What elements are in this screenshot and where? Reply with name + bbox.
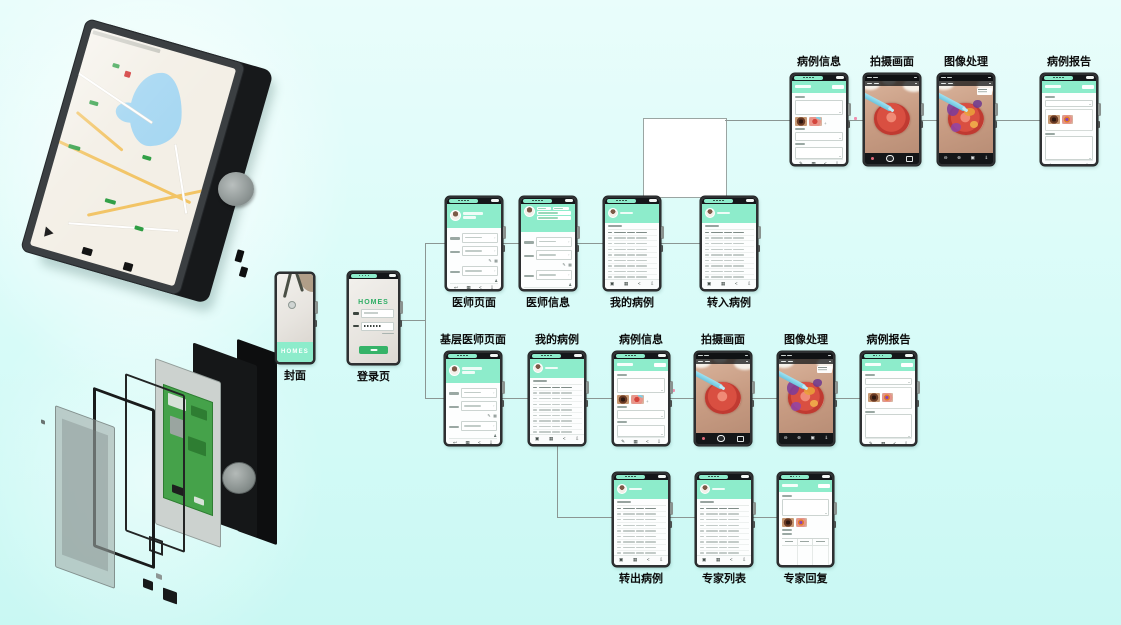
flow-edge — [725, 120, 790, 121]
bottom-nav: ↩ ▦ < ⇩ — [524, 287, 572, 290]
header-label — [795, 85, 811, 87]
report-images — [1045, 109, 1093, 131]
report-header — [862, 359, 915, 371]
add-photo-icon: + — [824, 122, 827, 127]
grid-icon: ▦ — [466, 286, 470, 289]
screen-label-cover: 封面 — [284, 367, 306, 383]
list-icon: ▣ — [702, 558, 706, 563]
processing-toolbar: ⊖ ⊕ ▣ ⇓ — [939, 153, 993, 164]
image-processing-screen: ⊖ ⊕ ▣ ⇓ — [779, 353, 833, 444]
header-search-pill — [654, 363, 666, 367]
case-report-screen: ✎ ▦ < ⇩ — [1042, 75, 1096, 164]
zoom-in-icon: ⊕ — [797, 436, 801, 441]
case-list-screen: ▣ ▦ < ⇩ — [697, 474, 751, 565]
grid-icon: ▦ — [633, 440, 637, 444]
download-icon: ⇩ — [835, 162, 839, 164]
edit-icon: ✎ — [562, 263, 565, 267]
case-table — [617, 505, 666, 554]
screen-label-expert-list: 专家列表 — [702, 570, 746, 586]
flow-edge — [502, 398, 528, 399]
case-list-screen: ▣ ▦ < ⇩ — [702, 198, 756, 289]
chevron-right-icon: › — [494, 269, 495, 273]
flow-edge — [557, 517, 612, 518]
wound-camera-view — [696, 359, 750, 434]
grid-icon: ▦ — [881, 442, 885, 444]
header-label — [782, 484, 798, 486]
field-label — [865, 374, 875, 376]
header-text-lines — [620, 212, 633, 214]
field-label — [782, 495, 792, 497]
bottom-nav: ▣ ▦ < ⇩ — [530, 434, 584, 445]
form-row: › — [524, 250, 572, 260]
processing-toolbar: ⊖ ⊕ ▣ ⇓ — [779, 433, 833, 444]
field-label — [1045, 96, 1055, 98]
list-icon: ▣ — [610, 282, 614, 287]
phone-report-2: ✎ ▦ < ⇩ 病例报告 — [860, 351, 917, 446]
wound-photo-thumb — [809, 117, 822, 127]
input-box — [795, 132, 843, 141]
wound-thumbnails: + — [795, 117, 843, 127]
header-text-lines — [629, 488, 642, 490]
back-icon: ↩ — [453, 441, 457, 444]
case-header — [614, 359, 668, 371]
phone-processing: ⊖ ⊕ ▣ ⇓ 图像处理 — [937, 73, 995, 166]
list-header — [702, 204, 756, 223]
reply-table — [782, 538, 829, 565]
list-icon: ▦ — [494, 259, 498, 263]
phone-login: HOMES 登录页 — [347, 271, 400, 365]
case-table — [533, 384, 582, 433]
back-icon: ↩ — [454, 286, 458, 289]
device-port — [239, 266, 248, 278]
profile-header — [446, 359, 500, 383]
wound-thumbnails — [782, 518, 829, 527]
camera-screen — [696, 353, 750, 444]
field-label — [617, 374, 627, 376]
password-label — [353, 325, 359, 327]
field-label — [782, 533, 792, 535]
header-label — [1045, 85, 1061, 87]
brand-text: HOMES — [281, 349, 309, 355]
grid-icon: ▦ — [624, 282, 628, 287]
account-input — [361, 309, 395, 318]
bottom-nav: ▣ ▦ < ⇩ — [702, 279, 756, 290]
flow-edge — [835, 398, 860, 399]
account-label — [353, 312, 359, 314]
input-box — [617, 425, 665, 437]
field-label — [865, 411, 875, 413]
header-text-lines — [712, 488, 725, 490]
save-icon: ⇓ — [824, 436, 828, 441]
bottom-nav: ↩ ▦ < ⇩ — [449, 438, 497, 445]
download-icon: ⇩ — [747, 282, 751, 287]
record-icon — [871, 157, 874, 160]
input-box — [617, 410, 665, 419]
flow-edge — [848, 120, 863, 121]
phone-report: ✎ ▦ < ⇩ 病例报告 — [1040, 73, 1098, 166]
screen-label-doctor-page: 医师页面 — [452, 294, 496, 310]
report-textarea — [865, 414, 912, 438]
download-icon: ⇩ — [575, 437, 579, 442]
edit-icon: ✎ — [621, 440, 625, 444]
profile-name-lines — [463, 212, 483, 218]
segmentation-overlay — [973, 100, 982, 108]
shutter-icon — [886, 155, 894, 163]
doctor-photo-background: HOMES — [349, 279, 398, 364]
field-label — [617, 421, 627, 423]
input-box — [795, 147, 843, 159]
doctor-profile-screen: › › ✎▦ › ♟ ↩ ▦ < ⇩ — [447, 198, 501, 289]
form-row: › — [524, 270, 572, 280]
profile-header — [521, 204, 575, 232]
phone-doctor-info: › › ✎▦ › ♟ ↩ ▦ < ⇩ 医师信息 — [519, 196, 577, 291]
profile-name-lines — [462, 367, 482, 373]
add-photo-icon: + — [646, 400, 649, 405]
phone-transfer-out: ▣ ▦ < ⇩ 转出病例 — [612, 472, 670, 567]
reply-header — [779, 480, 832, 492]
form-row: › — [450, 266, 498, 276]
header-search-pill — [901, 363, 913, 367]
list-icon: ▣ — [619, 558, 623, 563]
download-icon: ⇩ — [489, 441, 493, 444]
avatar — [533, 363, 543, 373]
phone-case-info: + ✎ ▦ < ⇩ 病例信息 — [790, 73, 848, 166]
bottom-nav: ✎ ▦ < ⇩ — [617, 437, 665, 444]
chevron-right-icon: › — [493, 404, 494, 408]
analysis-result-box — [977, 88, 992, 95]
list-icon: ▦ — [493, 414, 497, 418]
flow-edge — [995, 120, 1040, 121]
description-textarea — [617, 378, 665, 393]
chevron-right-icon: › — [568, 273, 569, 277]
image-processing-screen: ⊖ ⊕ ▣ ⇓ — [939, 75, 993, 164]
screen-label-processing: 图像处理 — [944, 53, 988, 69]
segmentation-overlay — [791, 402, 801, 411]
camera-top-bar — [779, 359, 833, 365]
knob-component — [222, 462, 256, 494]
chevron-right-icon: › — [493, 391, 494, 395]
share-icon: < — [638, 282, 641, 287]
bottom-nav: ✎ ▦ < ⇩ — [865, 438, 912, 444]
list-icon: ▦ — [568, 263, 572, 267]
battery-pill — [389, 274, 396, 277]
flow-edge — [753, 517, 777, 518]
doctor-info-screen: › › ✎▦ › ♟ ↩ ▦ < ⇩ — [521, 198, 575, 289]
login-button — [359, 346, 388, 355]
avatar — [524, 206, 535, 217]
phone-expert-reply: 专家回复 — [777, 472, 834, 567]
wound-photo-thumb — [617, 395, 629, 404]
processed-photo-thumb — [796, 518, 807, 527]
screen-label-processing-2: 图像处理 — [784, 331, 828, 347]
case-summary-box — [782, 499, 829, 516]
chevron-right-icon: › — [493, 424, 494, 428]
flow-edge — [425, 243, 426, 398]
list-header — [614, 480, 668, 499]
wound-photo-thumb — [1048, 115, 1060, 124]
brand-banner: HOMES — [277, 342, 313, 362]
record-icon — [702, 437, 705, 440]
screen-glass-layer — [55, 405, 115, 589]
screen-label-report: 病例报告 — [1047, 53, 1091, 69]
camera-top-bar — [865, 81, 919, 87]
flow-edge — [670, 398, 694, 399]
section-label — [700, 501, 714, 503]
avatar — [449, 365, 460, 376]
camera-top-bar — [696, 359, 750, 365]
input-box — [865, 378, 912, 385]
phone-expert-list: ▣ ▦ < ⇩ 专家列表 — [695, 472, 753, 567]
wound-photo-thumb — [782, 518, 794, 527]
share-icon: < — [479, 286, 482, 289]
avatar — [450, 210, 461, 221]
download-icon: ⇩ — [742, 558, 746, 563]
flow-edge — [921, 120, 937, 121]
download-icon: ⇩ — [490, 286, 494, 289]
segmentation-overlay — [951, 123, 961, 132]
screen-label-doctor-info: 医师信息 — [526, 294, 570, 310]
camera-screen — [865, 75, 919, 164]
small-component — [163, 587, 177, 604]
phone-primary-doctor: › › ✎▦ › ♟ ↩ ▦ < ⇩ 基层医师页面 — [444, 351, 502, 446]
bottom-nav: ✎ ▦ < ⇩ — [795, 159, 843, 164]
header-text-lines — [717, 212, 730, 214]
download-icon: ⇩ — [659, 558, 663, 563]
device-knob — [218, 172, 254, 206]
screen-label-transfer-out: 转出病例 — [619, 570, 663, 586]
device-exploded-view — [25, 350, 275, 622]
wound-camera-view — [865, 81, 919, 154]
header-label — [865, 363, 881, 365]
device-port — [234, 249, 244, 262]
field-label — [795, 128, 805, 130]
form-row: › — [524, 237, 572, 247]
flow-edge — [425, 243, 445, 244]
list-header — [697, 480, 751, 499]
case-table — [700, 505, 749, 554]
flow-edge — [586, 398, 612, 399]
list-header — [605, 204, 659, 223]
section-label — [533, 380, 547, 382]
chevron-right-icon: › — [494, 249, 495, 253]
field-label — [782, 529, 792, 531]
login-screen: HOMES — [349, 273, 398, 363]
form-row: › — [449, 388, 497, 398]
case-info-screen: + ✎ ▦ < ⇩ — [614, 353, 668, 444]
edit-icon: ✎ — [487, 414, 490, 418]
map-device-photo — [30, 22, 265, 317]
report-images — [865, 387, 912, 409]
junction-box — [643, 118, 727, 198]
flow-edge — [661, 243, 700, 244]
camera-top-bar — [939, 81, 993, 87]
case-list-screen: ▣ ▦ < ⇩ — [605, 198, 659, 289]
download-icon: ⇩ — [904, 442, 908, 444]
password-field — [353, 322, 394, 331]
flow-edge — [752, 398, 777, 399]
section-label — [608, 225, 622, 227]
download-icon: ⇩ — [657, 440, 661, 444]
share-icon: < — [647, 558, 650, 563]
processed-wound-view — [939, 81, 993, 154]
avatar — [617, 484, 627, 494]
zoom-out-icon: ⊖ — [944, 156, 948, 161]
screen-label-report-2: 病例报告 — [867, 331, 911, 347]
grid-icon: ▦ — [465, 441, 469, 444]
flow-edge — [503, 243, 519, 244]
grid-icon: ▦ — [721, 282, 725, 287]
expert-reply-screen — [779, 474, 832, 565]
bottom-nav: ↩ ▦ < ⇩ — [450, 283, 498, 290]
avatar — [705, 208, 715, 218]
screen-label-expert-reply: 专家回复 — [784, 570, 828, 586]
phone-capture: 拍摄画面 — [863, 73, 921, 166]
screen-label-login: 登录页 — [357, 368, 390, 384]
save-icon: ⇓ — [984, 156, 988, 161]
camera-toolbar — [696, 433, 750, 444]
segmentation-overlay — [813, 379, 822, 387]
screen-label-capture: 拍摄画面 — [870, 53, 914, 69]
case-table — [608, 229, 657, 278]
edit-icon: ✎ — [488, 259, 491, 263]
header-search-pill — [832, 85, 844, 89]
section-label — [617, 501, 631, 503]
wound-photo-thumb — [795, 117, 807, 126]
screen-label-my-cases: 我的病例 — [610, 294, 654, 310]
wound-thumbnails: + — [617, 395, 665, 405]
screen-label-case-info-2: 病例信息 — [619, 331, 663, 347]
share-icon: < — [824, 162, 827, 164]
screen-label-transfer-in: 转入病例 — [707, 294, 751, 310]
profile-detail-chips — [537, 206, 573, 220]
avatar — [608, 208, 618, 218]
list-icon: ▣ — [707, 282, 711, 287]
phone-case-info-2: + ✎ ▦ < ⇩ 病例信息 — [612, 351, 670, 446]
status-pill — [351, 274, 377, 278]
phone-my-cases-2: ▣ ▦ < ⇩ 我的病例 — [528, 351, 586, 446]
screen-label-my-cases-2: 我的病例 — [535, 331, 579, 347]
share-icon: < — [478, 441, 481, 444]
flow-edge — [577, 243, 603, 244]
case-report-screen: ✎ ▦ < ⇩ — [862, 353, 915, 444]
flow-edge — [670, 517, 695, 518]
list-icon: ▣ — [535, 437, 539, 442]
screen-label-case-info: 病例信息 — [797, 53, 841, 69]
processed-wound-view — [779, 359, 833, 434]
field-label — [617, 406, 627, 408]
doctor-profile-screen: › › ✎▦ › ♟ ↩ ▦ < ⇩ — [446, 353, 500, 444]
form-row: › — [450, 233, 498, 243]
bottom-nav: ▣ ▦ < ⇩ — [697, 555, 751, 566]
field-label — [795, 143, 805, 145]
header-label — [617, 363, 633, 365]
report-textarea — [1045, 136, 1093, 160]
wound-photo-thumb — [631, 395, 644, 405]
flow-edge — [400, 320, 425, 321]
grid-icon: ▦ — [549, 437, 553, 442]
header-text-lines — [545, 367, 558, 369]
processed-photo-thumb — [1062, 115, 1073, 124]
zoom-in-icon: ⊕ — [957, 156, 961, 161]
form-row: › — [450, 246, 498, 256]
header-search-pill — [818, 484, 830, 488]
grid-icon: ▦ — [633, 558, 637, 563]
phone-cover: HOMES 封面 — [275, 272, 315, 364]
small-component — [156, 573, 162, 580]
processed-photo-thumb — [882, 393, 893, 402]
phone-doctor-page: › › ✎▦ › ♟ ↩ ▦ < ⇩ 医师页面 — [445, 196, 503, 291]
gallery-icon — [737, 436, 744, 442]
frame-icon: ▣ — [971, 156, 975, 161]
doctor-photo — [277, 274, 313, 342]
splash-screen: HOMES — [277, 274, 313, 362]
phone-transfer-in: ▣ ▦ < ⇩ 转入病例 — [700, 196, 758, 291]
screen-label-capture-2: 拍摄画面 — [701, 331, 745, 347]
form-row: › — [449, 401, 497, 411]
form-row: › — [449, 421, 497, 431]
account-field — [353, 309, 394, 318]
gallery-icon — [906, 156, 913, 162]
stethoscope-icon — [288, 301, 296, 309]
flow-edge — [425, 398, 444, 399]
case-list-screen: ▣ ▦ < ⇩ — [614, 474, 668, 565]
chevron-right-icon: › — [568, 253, 569, 257]
list-header — [530, 359, 584, 378]
bottom-nav: ✎ ▦ < ⇩ — [1045, 160, 1093, 164]
connector-mark — [854, 117, 857, 120]
description-textarea — [795, 100, 843, 115]
section-label — [705, 225, 719, 227]
share-icon: < — [735, 282, 738, 287]
screen-label-primary-doctor: 基层医师页面 — [440, 331, 506, 347]
edit-icon: ✎ — [869, 442, 873, 444]
share-icon: < — [563, 437, 566, 442]
share-icon: < — [730, 558, 733, 563]
download-icon: ⇩ — [650, 282, 654, 287]
chevron-right-icon: › — [494, 236, 495, 240]
camera-toolbar — [865, 153, 919, 164]
field-label — [1045, 133, 1055, 135]
flow-edge — [557, 446, 558, 517]
brand-logo: HOMES — [358, 299, 389, 306]
share-icon: < — [646, 440, 649, 444]
input-box — [1045, 100, 1093, 107]
share-icon: < — [893, 442, 896, 444]
case-list-screen: ▣ ▦ < ⇩ — [530, 353, 584, 444]
grid-icon: ▦ — [716, 558, 720, 563]
phone-capture-2: 拍摄画面 — [694, 351, 752, 446]
figure-canvas: HOMES 封面 HOMES 登录页 › › ✎▦ › ♟ ↩ — [0, 0, 1121, 625]
phone-processing-2: ⊖ ⊕ ▣ ⇓ 图像处理 — [777, 351, 835, 446]
phone-my-cases: ▣ ▦ < ⇩ 我的病例 — [603, 196, 661, 291]
avatar — [700, 484, 710, 494]
report-header — [1042, 81, 1096, 93]
profile-header — [447, 204, 501, 228]
bottom-nav: ▣ ▦ < ⇩ — [614, 555, 668, 566]
case-table — [705, 229, 754, 278]
case-info-screen: + ✎ ▦ < ⇩ — [792, 75, 846, 164]
zoom-out-icon: ⊖ — [784, 436, 788, 441]
header-search-pill — [1082, 85, 1094, 89]
wound-photo-thumb — [868, 393, 880, 402]
small-component — [143, 578, 153, 591]
frame-icon: ▣ — [811, 436, 815, 441]
analysis-result-box — [817, 366, 832, 373]
bottom-nav: ▣ ▦ < ⇩ — [605, 279, 659, 290]
chevron-right-icon: › — [568, 240, 569, 244]
case-header — [792, 81, 846, 93]
password-input — [361, 322, 395, 331]
